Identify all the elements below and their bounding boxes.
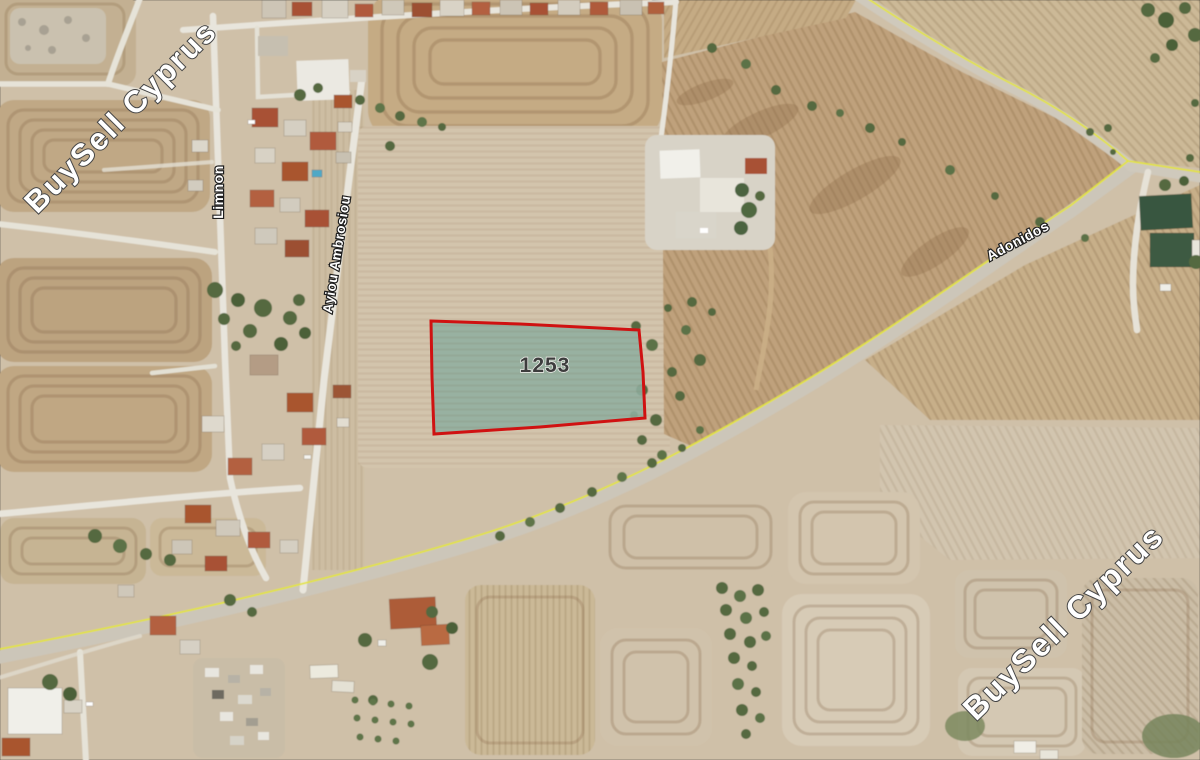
parcel-1253-label: 1253 xyxy=(520,354,571,377)
field-top-centre xyxy=(368,0,662,140)
field-left-b1 xyxy=(0,258,212,362)
swimming-pool xyxy=(312,170,322,177)
map-canvas[interactable]: Limnon Ayiou Ambrosiou Adonidos 1253 Buy… xyxy=(0,0,1200,760)
scrapyard xyxy=(193,658,285,758)
field-left-b2 xyxy=(0,366,212,472)
parcel-overlay: 1253 xyxy=(431,321,645,434)
parcel-1253-texture xyxy=(431,321,645,434)
satellite-map: Limnon Ayiou Ambrosiou Adonidos 1253 Buy… xyxy=(0,0,1200,760)
street-label-limnon: Limnon xyxy=(210,165,226,219)
field-top-left-corner xyxy=(0,0,136,86)
farm-compound xyxy=(645,135,775,250)
